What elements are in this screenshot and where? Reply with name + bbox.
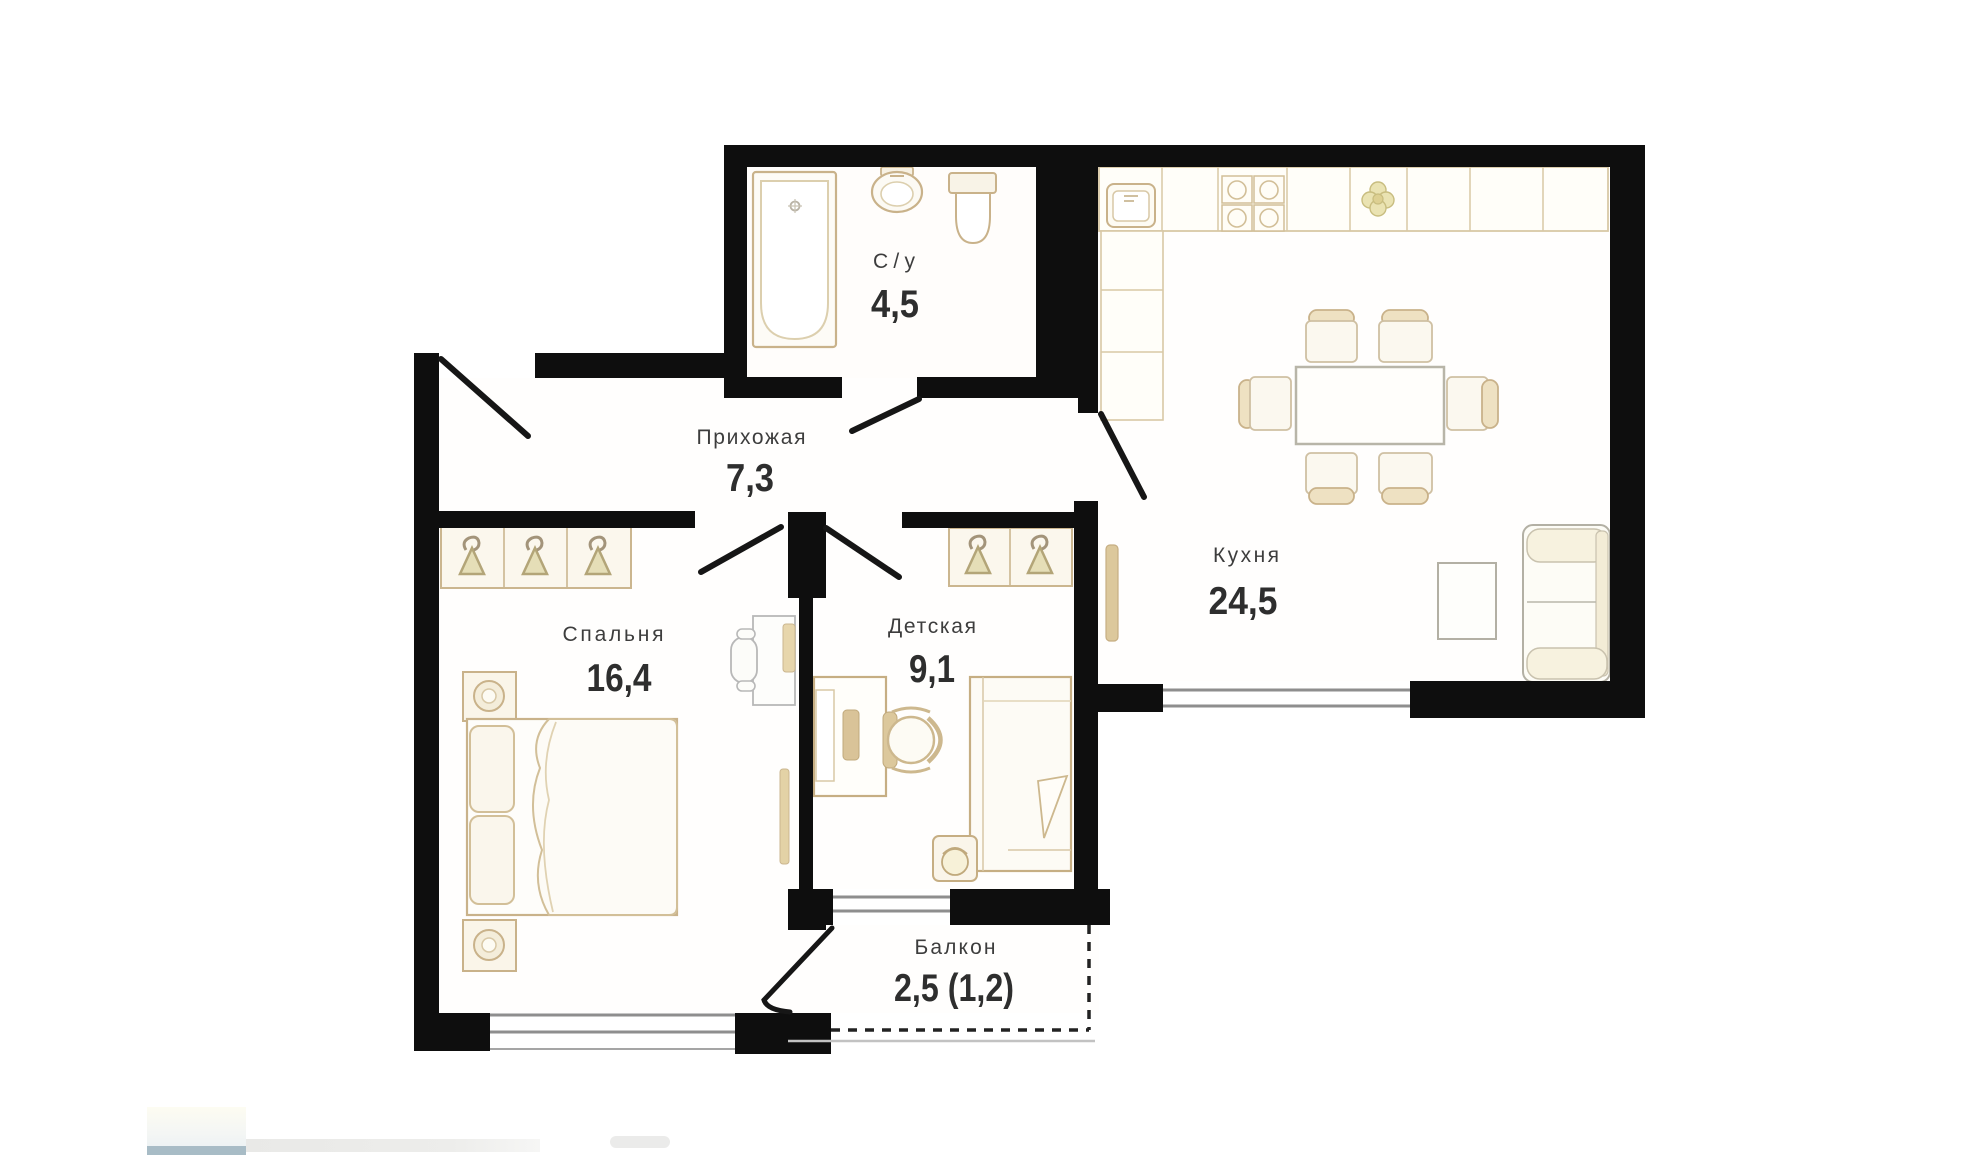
svg-text:Детская: Детская	[888, 615, 976, 638]
svg-text:7,3: 7,3	[726, 457, 774, 500]
svg-text:4,5: 4,5	[871, 283, 919, 326]
svg-text:24,5: 24,5	[1209, 580, 1278, 623]
svg-text:Прихожая: Прихожая	[697, 426, 806, 449]
svg-text:Спальня: Спальня	[563, 623, 664, 646]
svg-text:Балкон: Балкон	[915, 936, 996, 959]
svg-text:Кухня: Кухня	[1213, 544, 1279, 567]
svg-text:9,1: 9,1	[909, 648, 955, 691]
svg-text:С/у: С/у	[873, 250, 916, 273]
svg-text:16,4: 16,4	[587, 657, 652, 700]
svg-text:2,5 (1,2): 2,5 (1,2)	[894, 967, 1014, 1010]
